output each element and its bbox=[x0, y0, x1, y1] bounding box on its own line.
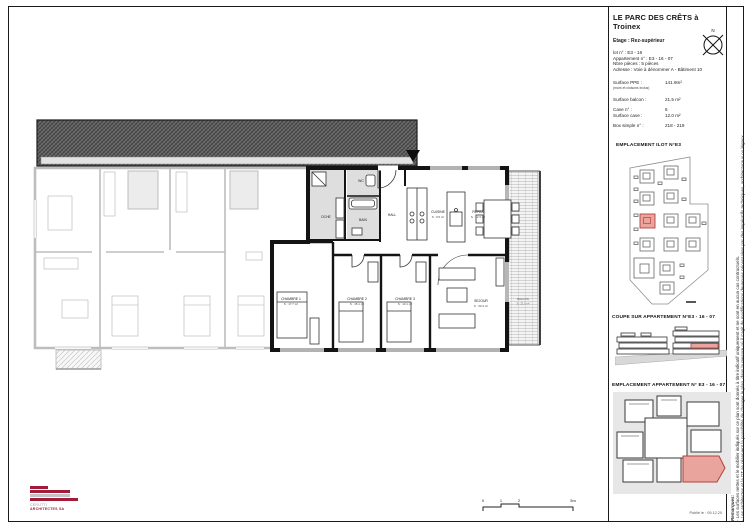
section-title-ilot: EMPLACEMENT ILOT N°E3 bbox=[616, 143, 681, 148]
highlighted-apartment bbox=[683, 456, 725, 482]
highlighted-floor bbox=[691, 344, 718, 349]
label-cuisine-surface: S : 9.5 m² bbox=[432, 215, 445, 219]
scale-2: 2 bbox=[518, 498, 521, 503]
apartment-location-diagram bbox=[613, 392, 731, 504]
cave-row: Cave n° : 6 bbox=[613, 107, 723, 113]
label-chambre3-surface: S : 13.1 m² bbox=[398, 302, 412, 306]
label-repas-surface: S : 12.3 m² bbox=[471, 215, 485, 219]
label-hall: HALL bbox=[388, 213, 397, 217]
section-title-emplacement: EMPLACEMENT APPARTEMENT N° E3 - 16 - 07 bbox=[612, 383, 725, 388]
logo-firm-type: ARCHITECTES SA bbox=[30, 507, 100, 511]
label-bain: BAIN bbox=[359, 218, 367, 222]
publication-date: Publié le : 09.12.20 bbox=[648, 511, 722, 515]
surface-cave-row: Surface cave : 12.0 m² bbox=[613, 113, 723, 119]
box-row: Box simple n° : 218 - 219 bbox=[613, 123, 723, 129]
architect-logo: CERUTTI ARCHITECTES SA bbox=[30, 486, 100, 511]
disclaimer-line2: - Les architectes et la DT se réservent … bbox=[740, 23, 745, 521]
label-sejour-surface: S : 30.3 m² bbox=[474, 304, 488, 308]
surface-balcon-row: Surface balcon : 21.5 m² bbox=[613, 97, 723, 103]
label-balcon: BALCON bbox=[517, 297, 529, 301]
label-chambre1: CHAMBRE 1 bbox=[281, 297, 301, 301]
label-repas: REPAS bbox=[472, 210, 484, 214]
scale-bar: 0 1 2 5m bbox=[478, 495, 582, 517]
label-dche: DCHE bbox=[321, 215, 331, 219]
svg-text:N: N bbox=[711, 28, 714, 33]
inactive-apartments bbox=[33, 168, 308, 369]
label-cuisine: CUISINE bbox=[431, 210, 445, 214]
scale-5m: 5m bbox=[570, 498, 576, 503]
label-balcon-surface: S : 21.5 m² bbox=[517, 302, 530, 306]
disclaimer-text: Remarques: - Les surfaces nettes et le m… bbox=[730, 23, 745, 521]
label-wc: WC bbox=[358, 179, 364, 183]
compass-icon: N bbox=[697, 27, 729, 59]
highlighted-building bbox=[640, 214, 655, 228]
site-plan-diagram bbox=[616, 152, 724, 310]
label-chambre1-surface: S : 17.7 m² bbox=[284, 302, 298, 306]
section-cut-diagram bbox=[615, 323, 727, 373]
label-sejour: SEJOUR bbox=[474, 299, 488, 303]
label-chambre2-surface: S : 15.1 m² bbox=[350, 302, 364, 306]
label-chambre2: CHAMBRE 2 bbox=[347, 297, 367, 301]
section-title-coupe: COUPE SUR APPARTEMENT N°E3 - 16 - 07 bbox=[612, 315, 715, 320]
balcony bbox=[509, 171, 540, 345]
scale-1: 1 bbox=[500, 498, 503, 503]
roof-band bbox=[37, 120, 417, 166]
surface-ppe-row: Surface PPE : 141.9m² bbox=[613, 80, 723, 86]
label-chambre3: CHAMBRE 3 bbox=[395, 297, 415, 301]
inactive-balcony bbox=[56, 350, 101, 369]
active-apartment: DCHE WC BAIN HALL CUISINE S : 9.5 m² REP… bbox=[272, 166, 540, 353]
scale-0: 0 bbox=[482, 498, 485, 503]
